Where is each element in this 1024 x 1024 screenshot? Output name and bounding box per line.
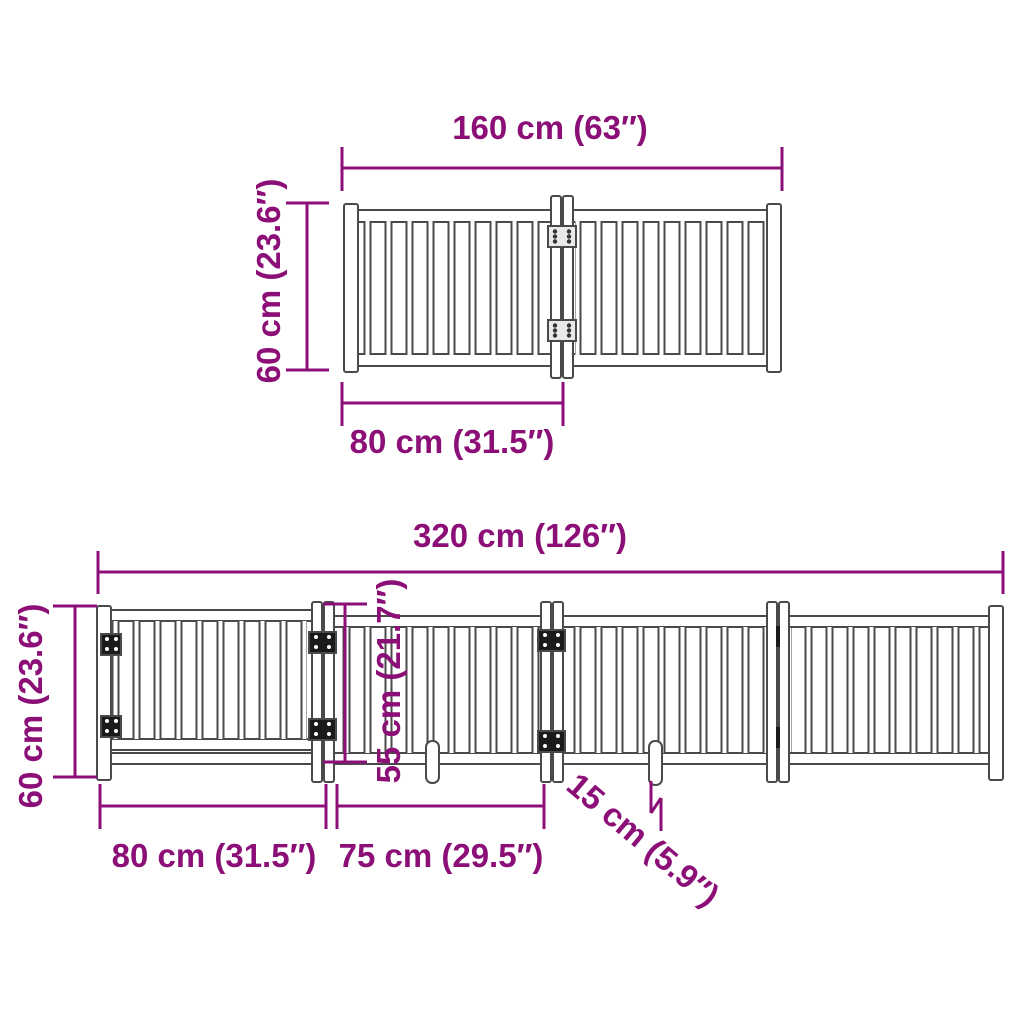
pair3-hinge-pin-lower (776, 727, 780, 748)
dimension-diagram: 160 cm (63″) 60 cm (23.6″) 80 cm (31.5″)… (0, 0, 1024, 1024)
pair1-hinge-lower (309, 719, 336, 740)
top-total-width-label: 160 cm (63″) (350, 108, 750, 148)
bottom-height-label: 60 cm (23.6″) (11, 556, 51, 856)
door-hinge-lower (101, 716, 121, 737)
bottom-gate-top-rail (333, 616, 990, 627)
top-panel-width-label: 80 cm (31.5″) (252, 422, 652, 462)
post-pair1-a (312, 602, 322, 782)
door-hinge-upper (101, 634, 121, 655)
post-pair3-a (767, 602, 777, 782)
top-gate-right-post (767, 204, 781, 372)
bottom-gate-right-post (989, 606, 1003, 780)
top-gate-left-panel-slats (360, 221, 553, 355)
top-height-label: 60 cm (23.6″) (249, 131, 289, 431)
bottom-second-panel-width-label: 75 cm (29.5″) (241, 836, 641, 876)
top-gate-hinge-upper (548, 226, 576, 247)
pair2-hinge-upper (538, 630, 565, 651)
panel2-slats (337, 627, 540, 753)
top-gate-left-post (344, 204, 358, 372)
panel2-support-foot (426, 741, 439, 783)
pair1-hinge-upper (309, 632, 336, 653)
pair3-hinge-pin-upper (776, 626, 780, 647)
panel4-slats (791, 627, 988, 753)
door-bottom-rail (107, 739, 318, 750)
post-pair3-b (779, 602, 789, 782)
top-gate-center-post-a (551, 196, 561, 378)
door-panel-slats (111, 621, 307, 739)
panel3-slats (563, 627, 766, 753)
top-gate-drawing (344, 196, 781, 378)
bottom-gate-left-post (97, 606, 111, 780)
bottom-door-height-label: 55 cm (21.7″) (369, 531, 409, 831)
post-pair1-b (324, 602, 334, 782)
top-gate-hinge-lower (548, 320, 576, 341)
top-gate-center-post-b (563, 196, 573, 378)
door-top-rail (107, 610, 318, 621)
panel3-support-foot (649, 741, 662, 785)
top-gate-right-panel-slats (575, 221, 769, 355)
